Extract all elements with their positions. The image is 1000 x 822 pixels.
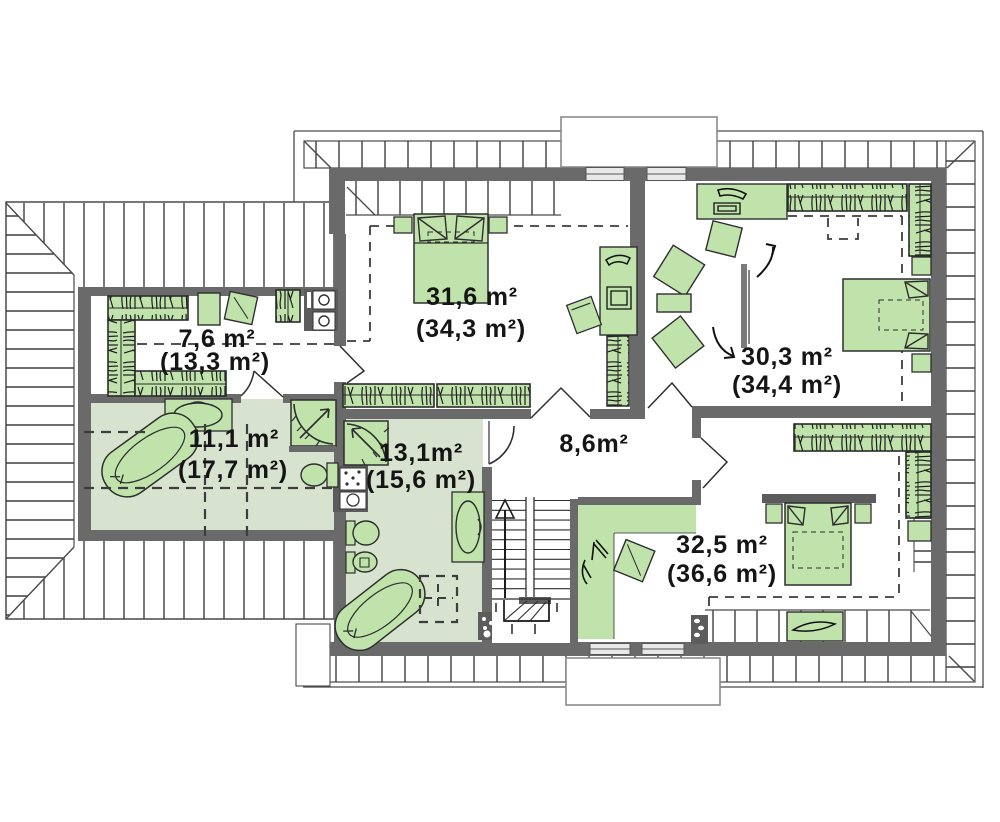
- svg-text:(34,3 m²): (34,3 m²): [416, 315, 526, 343]
- svg-text:11,1 m²: 11,1 m²: [189, 425, 279, 453]
- svg-text:(13,3 m²): (13,3 m²): [160, 348, 270, 376]
- svg-text:(34,4 m²): (34,4 m²): [732, 371, 842, 399]
- svg-text:(17,7 m²): (17,7 m²): [178, 456, 288, 484]
- svg-text:31,6 m²: 31,6 m²: [426, 283, 518, 311]
- svg-text:32,5 m²: 32,5 m²: [676, 531, 768, 559]
- svg-text:(36,6 m²): (36,6 m²): [667, 560, 777, 588]
- svg-text:13,1m²: 13,1m²: [379, 439, 463, 467]
- svg-text:(15,6 m²): (15,6 m²): [366, 466, 476, 494]
- svg-text:30,3 m²: 30,3 m²: [741, 343, 833, 371]
- svg-text:8,6m²: 8,6m²: [559, 430, 628, 458]
